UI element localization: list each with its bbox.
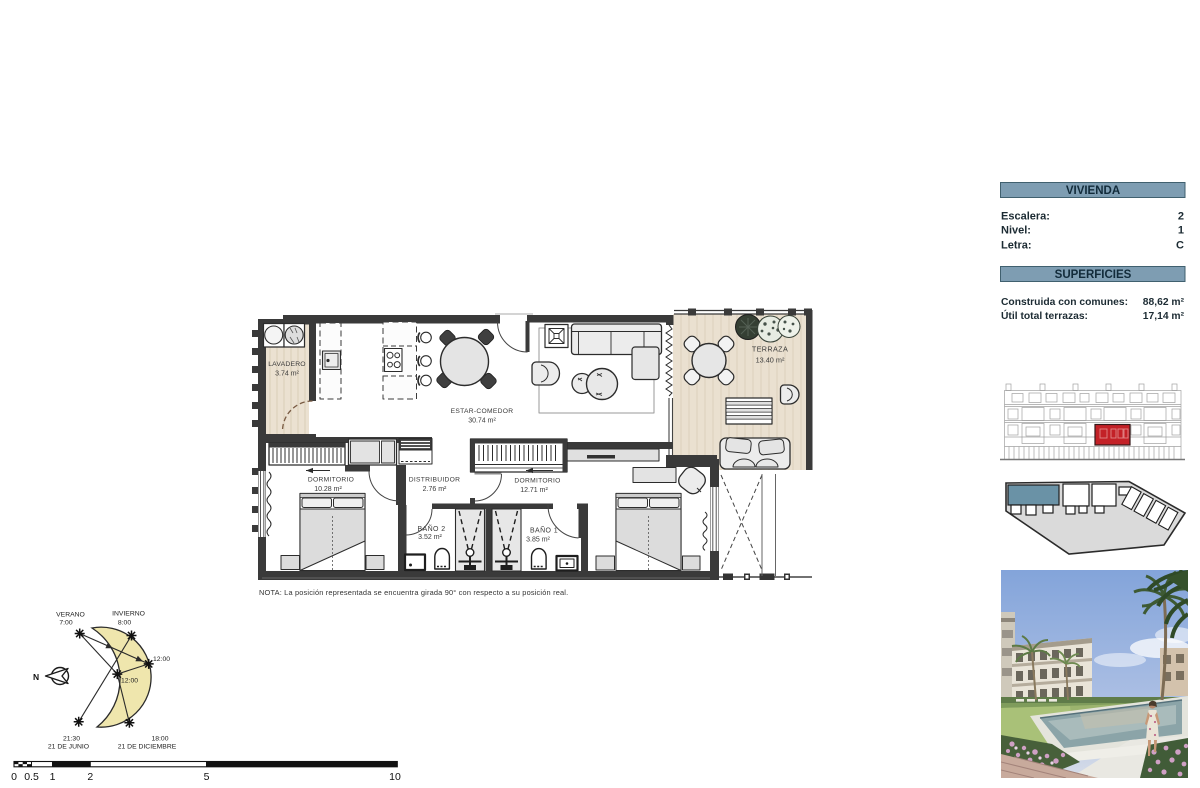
svg-text:Útil total terrazas:: Útil total terrazas: bbox=[1001, 309, 1088, 322]
svg-text:Letra:: Letra: bbox=[1001, 240, 1032, 252]
svg-text:1: 1 bbox=[1178, 225, 1184, 237]
svg-text:30.74 m²: 30.74 m² bbox=[468, 418, 496, 425]
svg-text:DORMITORIO: DORMITORIO bbox=[308, 477, 354, 484]
svg-text:VERANO: VERANO bbox=[56, 612, 85, 619]
svg-text:3.85 m²: 3.85 m² bbox=[526, 537, 550, 544]
svg-text:12:00: 12:00 bbox=[121, 678, 138, 685]
svg-text:2: 2 bbox=[87, 771, 93, 783]
svg-text:Nivel:: Nivel: bbox=[1001, 225, 1031, 237]
svg-text:8:00: 8:00 bbox=[118, 620, 131, 627]
svg-text:N: N bbox=[33, 672, 39, 682]
svg-text:VIVIENDA: VIVIENDA bbox=[1066, 185, 1120, 197]
svg-text:3.74 m²: 3.74 m² bbox=[275, 371, 299, 378]
svg-text:DORMITORIO: DORMITORIO bbox=[514, 478, 560, 485]
svg-text:BAÑO 2: BAÑO 2 bbox=[417, 524, 445, 533]
svg-text:13.40 m²: 13.40 m² bbox=[756, 356, 785, 365]
svg-text:INVIERNO: INVIERNO bbox=[112, 611, 145, 618]
svg-text:TERRAZA: TERRAZA bbox=[752, 345, 788, 354]
svg-text:17,14 m²: 17,14 m² bbox=[1143, 311, 1185, 322]
svg-text:3.52 m²: 3.52 m² bbox=[418, 534, 442, 541]
svg-text:12:00: 12:00 bbox=[153, 656, 170, 663]
svg-text:0.5: 0.5 bbox=[24, 771, 39, 783]
svg-text:BAÑO 1: BAÑO 1 bbox=[530, 526, 558, 535]
svg-text:5: 5 bbox=[204, 771, 210, 783]
svg-text:12.71 m²: 12.71 m² bbox=[520, 487, 548, 494]
svg-text:0: 0 bbox=[11, 771, 17, 783]
svg-text:1: 1 bbox=[50, 771, 56, 783]
svg-text:2.76 m²: 2.76 m² bbox=[423, 486, 447, 493]
svg-text:2: 2 bbox=[1178, 211, 1184, 223]
svg-text:DISTRIBUIDOR: DISTRIBUIDOR bbox=[409, 477, 461, 484]
svg-text:ESTAR-COMEDOR: ESTAR-COMEDOR bbox=[451, 408, 514, 415]
svg-text:NOTA: La posición representada: NOTA: La posición representada se encuen… bbox=[259, 588, 568, 597]
svg-text:21 DE DICIEMBRE: 21 DE DICIEMBRE bbox=[118, 744, 177, 751]
svg-text:18:00: 18:00 bbox=[151, 736, 168, 743]
svg-text:SUPERFICIES: SUPERFICIES bbox=[1055, 269, 1132, 281]
svg-text:10: 10 bbox=[389, 771, 401, 783]
svg-text:21 DE JUNIO: 21 DE JUNIO bbox=[48, 744, 89, 751]
svg-text:LAVADERO: LAVADERO bbox=[268, 361, 306, 368]
svg-text:Construida con comunes:: Construida con comunes: bbox=[1001, 297, 1128, 308]
svg-text:21:30: 21:30 bbox=[63, 736, 80, 743]
svg-text:10.28 m²: 10.28 m² bbox=[314, 486, 342, 493]
svg-text:Escalera:: Escalera: bbox=[1001, 211, 1050, 223]
svg-text:7:00: 7:00 bbox=[59, 620, 72, 627]
svg-text:88,62 m²: 88,62 m² bbox=[1143, 297, 1185, 308]
svg-text:C: C bbox=[1176, 240, 1184, 252]
